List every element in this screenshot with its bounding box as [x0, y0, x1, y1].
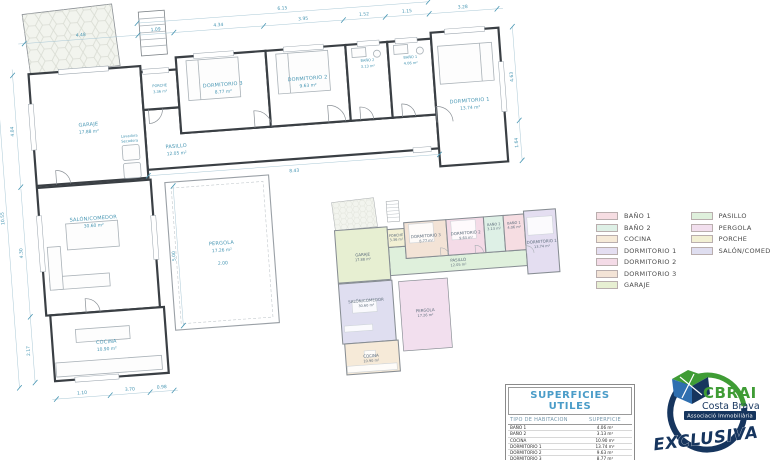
svg-text:8.43: 8.43 — [289, 168, 300, 175]
table-row: DORMITORIO 38.77 m² — [508, 456, 632, 460]
legend-column-1: BAÑO 1 BAÑO 2 COCINA DORMITORIO 1 DORMIT… — [596, 212, 677, 290]
surfaces-table-header: TIPO DE HABITACION SUPERFICIE — [508, 415, 632, 425]
legend-swatch — [596, 224, 618, 232]
legend-label: COCINA — [624, 235, 651, 243]
legend-swatch — [596, 270, 618, 278]
legend-item: PASILLO — [691, 212, 770, 221]
legend-label: PORCHE — [719, 235, 748, 243]
legend-label: DORMITORIO 1 — [624, 247, 677, 255]
row-value: 3.13 m² — [580, 431, 630, 436]
svg-text:4.63: 4.63 — [509, 72, 516, 83]
row-value: 10.90 m² — [580, 438, 630, 443]
row-name: BAÑO 2 — [510, 431, 580, 436]
label-appliances: Lavadora Secadora — [121, 133, 138, 143]
logo-brand: CBRAI — [703, 384, 757, 402]
svg-text:4.04: 4.04 — [9, 126, 16, 137]
row-value: 13.74 m² — [580, 444, 630, 449]
svg-text:1.64: 1.64 — [513, 137, 520, 148]
legend-swatch — [596, 212, 618, 220]
svg-text:4.48: 4.48 — [76, 32, 87, 39]
legend-label: SALÓN/COMEDOR — [719, 247, 770, 255]
svg-text:5.00: 5.00 — [171, 251, 178, 262]
svg-text:2.00: 2.00 — [218, 260, 229, 267]
legend-item: COCINA — [596, 235, 677, 244]
technical-plan: GARAJE 17.88 m² PORCHE 3.36 m² DORMITORI… — [0, 0, 540, 405]
surfaces-table-title: SUPERFICIES UTILES — [508, 387, 632, 415]
legend-swatch — [596, 247, 618, 255]
legend-label: GARAJE — [624, 281, 650, 289]
col-tipo: TIPO DE HABITACION — [510, 417, 580, 423]
svg-text:2.17: 2.17 — [25, 346, 32, 357]
svg-text:6.15: 6.15 — [277, 5, 288, 12]
svg-text:1.10: 1.10 — [77, 390, 88, 397]
svg-text:BAÑO 1: BAÑO 1 — [403, 54, 417, 60]
row-name: COCINA — [510, 438, 580, 443]
legend-item: SALÓN/COMEDOR — [691, 247, 770, 256]
legend-label: DORMITORIO 3 — [624, 270, 677, 278]
logo-region: Costa Brava — [702, 401, 760, 412]
svg-text:4.34: 4.34 — [213, 22, 224, 29]
terrain-hatch-pattern — [22, 4, 120, 75]
legend-swatch — [691, 212, 713, 220]
legend-item: PORCHE — [691, 235, 770, 244]
agency-logo: CBRAI Costa Brava Associació Immobiliàri… — [644, 368, 770, 460]
row-name: DORMITORIO 3 — [510, 456, 580, 460]
svg-text:1.15: 1.15 — [402, 8, 413, 15]
svg-text:BAÑO 2: BAÑO 2 — [360, 57, 374, 63]
terrain-hatch-small-pattern — [331, 198, 377, 231]
legend-item: BAÑO 1 — [596, 212, 677, 221]
legend-item: GARAJE — [596, 281, 677, 290]
legend-item: DORMITORIO 1 — [596, 247, 677, 256]
stairs — [138, 10, 167, 56]
svg-text:10.55: 10.55 — [0, 212, 6, 225]
legend-label: BAÑO 1 — [624, 212, 651, 220]
legend-item: BAÑO 2 — [596, 224, 677, 233]
stairs-small — [386, 201, 400, 223]
svg-text:0.98: 0.98 — [157, 384, 168, 391]
legend-item: DORMITORIO 3 — [596, 270, 677, 279]
legend-label: BAÑO 2 — [624, 224, 651, 232]
svg-text:3.95: 3.95 — [298, 16, 309, 23]
legend-label: PERGOLA — [719, 224, 752, 232]
legend-item: PERGOLA — [691, 224, 770, 233]
svg-text:1.09: 1.09 — [150, 26, 161, 33]
svg-text:1.52: 1.52 — [359, 11, 370, 18]
svg-text:3.28: 3.28 — [458, 4, 469, 11]
logo-association: Associació Immobiliària — [687, 413, 753, 420]
row-name: BAÑO 1 — [510, 425, 580, 430]
legend-column-2: PASILLO PERGOLA PORCHE SALÓN/COMEDOR — [691, 212, 770, 290]
row-value: 8.77 m² — [580, 456, 630, 460]
col-superficie: SUPERFICIE — [580, 417, 630, 423]
legend-swatch — [691, 235, 713, 243]
floorplan-sheet: GARAJE 17.88 m² PORCHE 3.36 m² DORMITORI… — [0, 0, 770, 460]
legend-label: DORMITORIO 2 — [624, 258, 677, 266]
surfaces-table: SUPERFICIES UTILES TIPO DE HABITACION SU… — [505, 384, 635, 460]
row-name: DORMITORIO 2 — [510, 450, 580, 455]
legend-swatch — [596, 258, 618, 266]
legend-swatch — [596, 281, 618, 289]
legend-swatch — [691, 247, 713, 255]
svg-text:4.30: 4.30 — [18, 248, 25, 259]
legend-item: DORMITORIO 2 — [596, 258, 677, 267]
legend-label: PASILLO — [719, 212, 747, 220]
croom-bano1 — [503, 214, 526, 251]
legend-swatch — [596, 235, 618, 243]
colored-plan: GARAJE 17.88 m² PORCHE 3.36 m² DORMITORI… — [331, 184, 566, 375]
legend-swatch — [691, 224, 713, 232]
room-legend: BAÑO 1 BAÑO 2 COCINA DORMITORIO 1 DORMIT… — [596, 212, 770, 290]
row-name: DORMITORIO 1 — [510, 444, 580, 449]
svg-text:3.70: 3.70 — [125, 386, 136, 393]
croom-bano2 — [483, 215, 505, 252]
row-value: 4.06 m² — [580, 425, 630, 430]
row-value: 9.63 m² — [580, 450, 630, 455]
